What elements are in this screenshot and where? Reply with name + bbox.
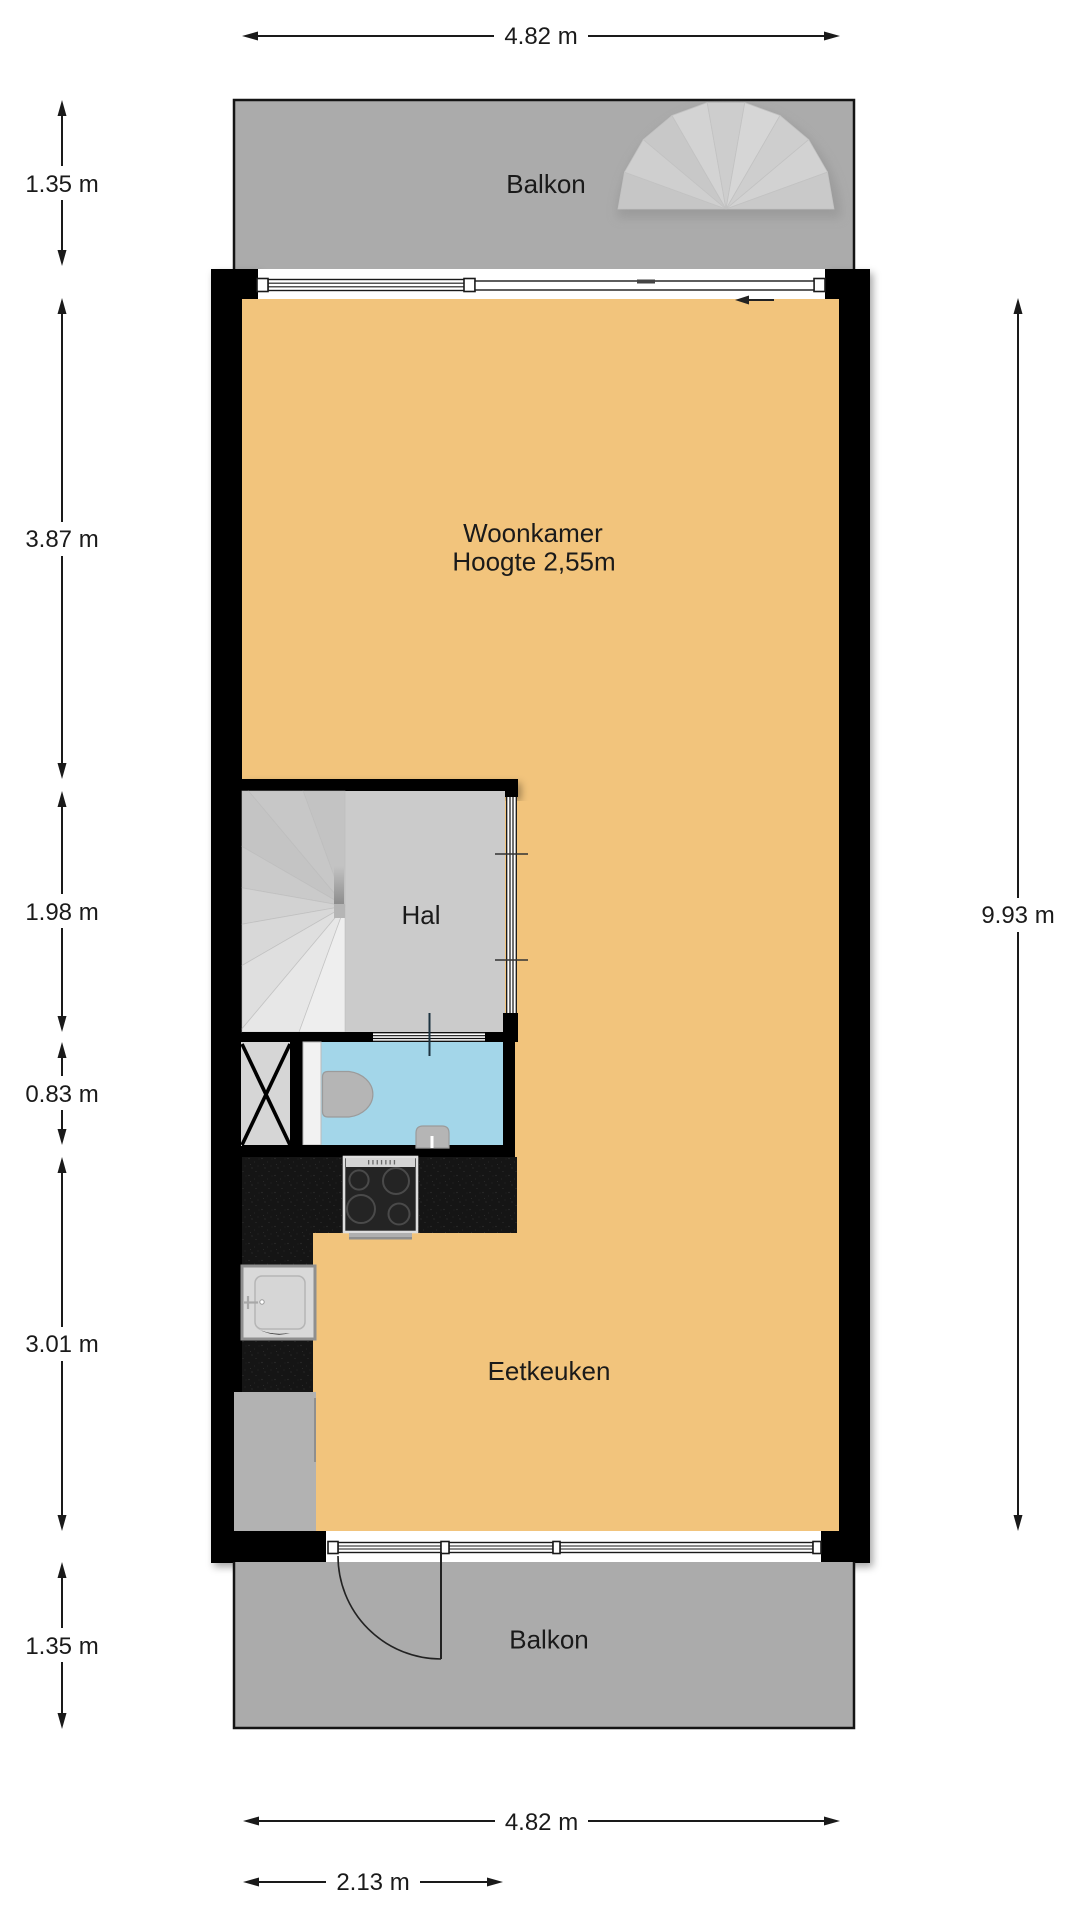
svg-text:0.83 m: 0.83 m — [25, 1081, 98, 1108]
svg-text:Woonkamer: Woonkamer — [463, 518, 603, 548]
svg-text:4.82 m: 4.82 m — [504, 23, 577, 50]
svg-text:Hoogte 2,55m: Hoogte 2,55m — [452, 547, 615, 577]
svg-text:Balkon: Balkon — [506, 169, 586, 199]
svg-text:Eetkeuken: Eetkeuken — [488, 1356, 611, 1386]
svg-text:1.35 m: 1.35 m — [25, 1633, 98, 1660]
svg-text:Hal: Hal — [401, 900, 440, 930]
svg-text:3.87 m: 3.87 m — [25, 526, 98, 553]
svg-text:1.35 m: 1.35 m — [25, 171, 98, 198]
svg-text:2.13 m: 2.13 m — [336, 1869, 409, 1896]
svg-text:9.93 m: 9.93 m — [981, 902, 1054, 929]
svg-text:1.98 m: 1.98 m — [25, 899, 98, 926]
svg-text:Balkon: Balkon — [509, 1625, 589, 1655]
svg-text:4.82 m: 4.82 m — [505, 1809, 578, 1836]
svg-text:3.01 m: 3.01 m — [25, 1331, 98, 1358]
